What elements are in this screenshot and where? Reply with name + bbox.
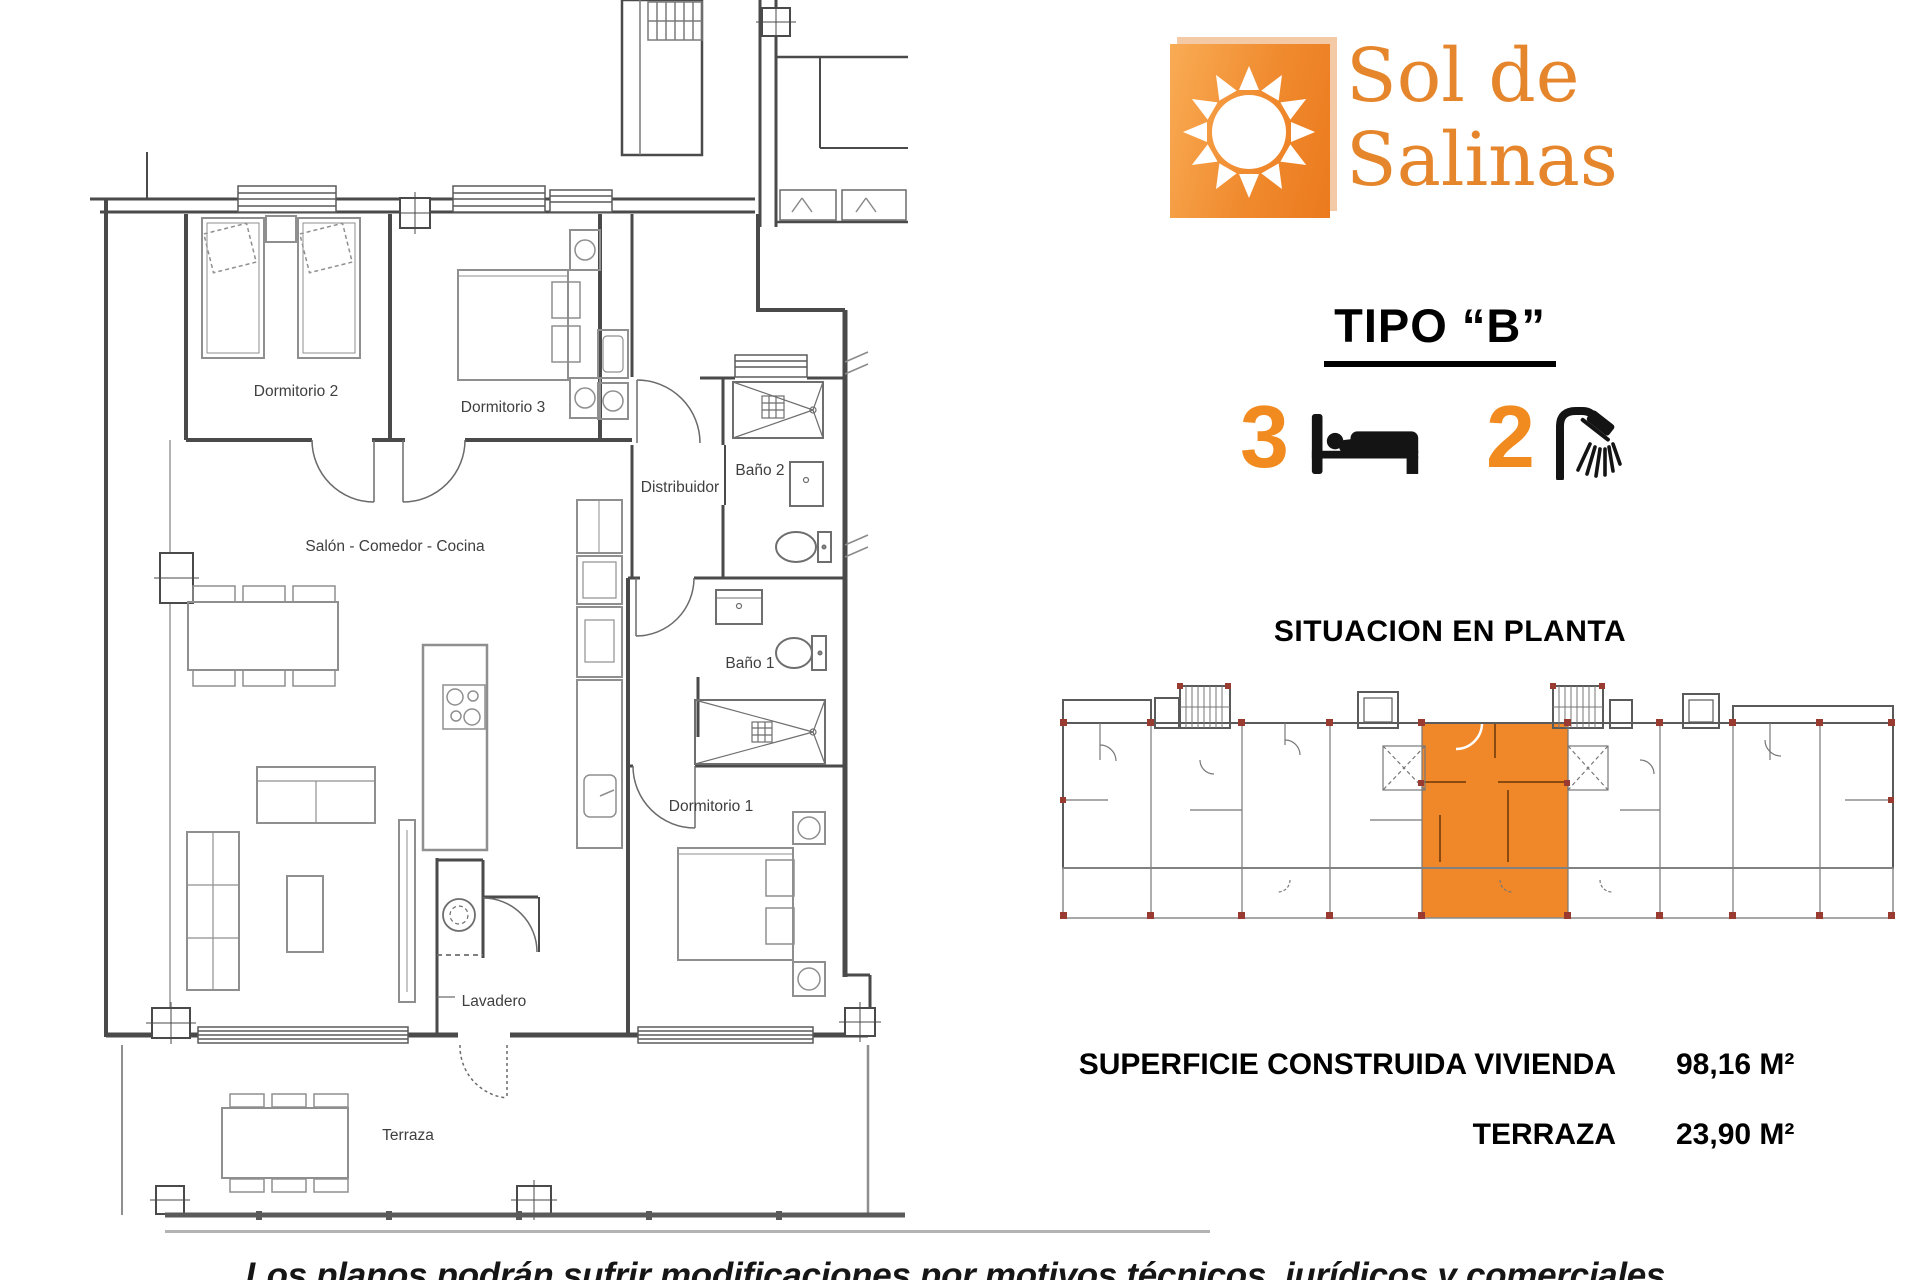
- bano1-fixtures: [695, 590, 826, 764]
- lavadero-fixtures: [437, 899, 483, 997]
- room-label-salon: Salón - Comedor - Cocina: [305, 538, 485, 555]
- logo-line-1: Sol de: [1346, 34, 1618, 118]
- dormitorio2-furniture: [202, 216, 360, 358]
- room-label-distribuidor: Distribuidor: [641, 479, 719, 496]
- logo-line-2: Salinas: [1346, 118, 1618, 202]
- logo-square: [1170, 44, 1330, 218]
- shower-icon: [1552, 404, 1624, 480]
- room-label-bano-1: Baño 1: [725, 655, 774, 672]
- terrace-area-label: TERRAZA: [1050, 1118, 1616, 1152]
- highlighted-unit: [1422, 723, 1568, 918]
- logo-wordmark: Sol de Salinas: [1346, 34, 1618, 202]
- dormitorio1-furniture: [678, 812, 825, 996]
- built-area-label: SUPERFICIE CONSTRUIDA VIVIENDA: [1050, 1048, 1616, 1082]
- room-label-dormitorio-2: Dormitorio 2: [254, 383, 338, 400]
- room-label-dormitorio-1: Dormitorio 1: [669, 798, 753, 815]
- dormitorio3-furniture: [458, 230, 600, 418]
- bedroom-count: 3: [1240, 402, 1289, 472]
- bathroom-count: 2: [1486, 402, 1535, 472]
- living-furniture: [187, 586, 415, 1002]
- terrace-elements: [122, 1045, 905, 1220]
- brochure-page: Dormitorio 2 Dormitorio 3 Baño 2 Distrib…: [0, 0, 1920, 1280]
- terrace-area-value: 23,90 M²: [1676, 1118, 1794, 1152]
- room-label-lavadero: Lavadero: [462, 993, 527, 1010]
- utility-strip: [598, 330, 628, 419]
- floor-plan: Dormitorio 2 Dormitorio 3 Baño 2 Distrib…: [0, 0, 960, 1245]
- sun-icon: [1170, 44, 1330, 218]
- bed-icon: [1308, 410, 1424, 478]
- room-label-bano-2: Baño 2: [735, 462, 784, 479]
- disclaimer-text: Los planos podrán sufrir modificaciones …: [0, 1256, 1920, 1280]
- situation-plan: [1050, 670, 1910, 935]
- type-title-wrap: TIPO “B”: [1140, 298, 1740, 367]
- ground-line: [165, 1230, 1210, 1233]
- situation-title: SITUACION EN PLANTA: [1060, 615, 1840, 649]
- room-label-terraza: Terraza: [382, 1127, 434, 1144]
- built-area-value: 98,16 M²: [1676, 1048, 1794, 1082]
- type-title: TIPO “B”: [1324, 298, 1556, 367]
- room-label-dormitorio-3: Dormitorio 3: [461, 399, 545, 416]
